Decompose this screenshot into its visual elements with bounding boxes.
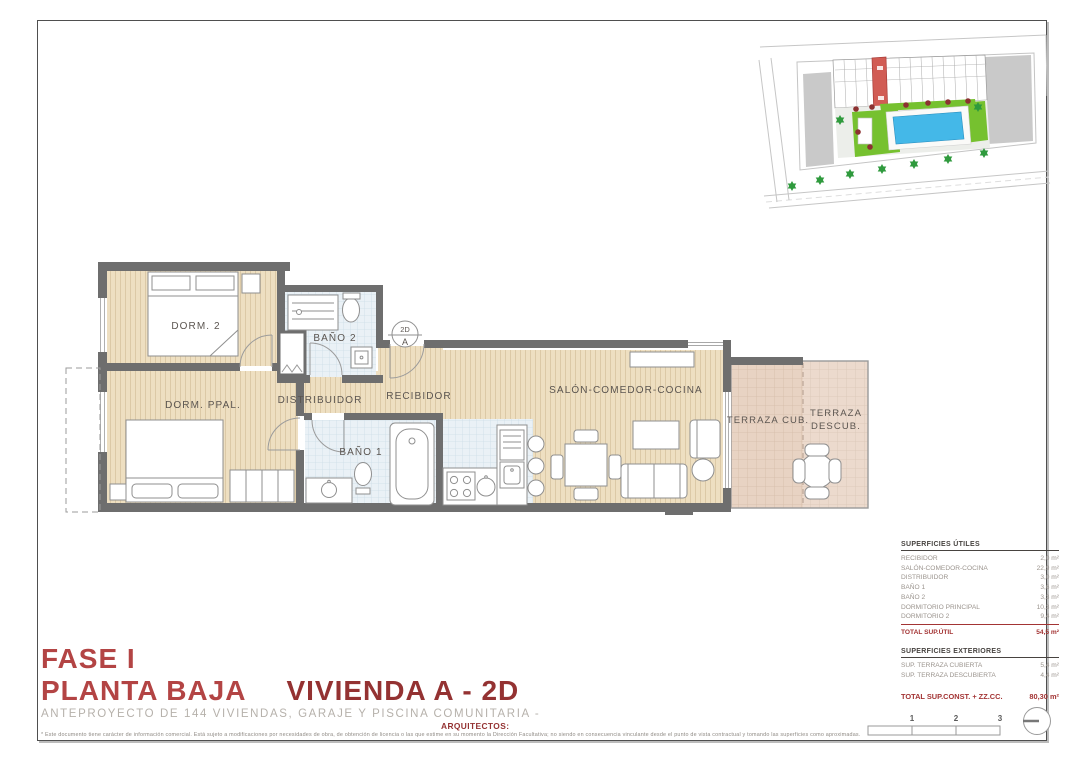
- table-row: SALÓN-COMEDOR-COCINA 22,9 m²: [901, 564, 1059, 574]
- plan-sheet: DORM. 2 BAÑO 2 DORM. PPAL. DISTRIBUIDOR …: [0, 0, 1080, 763]
- room-label-dorm-ppal: DORM. PPAL.: [165, 400, 241, 411]
- legal-disclaimer: * Este documento tiene carácter de infor…: [41, 732, 861, 738]
- table-row: SUP. TERRAZA DESCUBIERTA 4,4 m²: [901, 671, 1059, 681]
- row-label: TOTAL SUP.CONST. + ZZ.CC.: [901, 692, 1003, 701]
- room-label-dorm2: DORM. 2: [171, 321, 220, 332]
- row-label: SALÓN-COMEDOR-COCINA: [901, 564, 988, 574]
- section-marker: 2D A: [388, 321, 422, 347]
- project-subtitle: ANTEPROYECTO DE 144 VIVIENDAS, GARAJE Y …: [41, 708, 540, 720]
- row-value: 3,0 m²: [1040, 573, 1059, 583]
- row-label: DISTRIBUIDOR: [901, 573, 948, 583]
- row-value: 54,5 m²: [1036, 628, 1059, 637]
- table-row: BAÑO 1 3,6 m²: [901, 583, 1059, 593]
- patio-dashed-outline: [66, 368, 100, 512]
- room-label-bano1: BAÑO 1: [339, 445, 382, 458]
- site-garden: [835, 98, 990, 158]
- grand-total-row: TOTAL SUP.CONST. + ZZ.CC. 80,30 m²: [901, 692, 1059, 701]
- table-row: BAÑO 2 3,3 m²: [901, 593, 1059, 603]
- plan-title-line: PLANTA BAJAVIVIENDA A - 2D: [41, 675, 519, 707]
- phase-title: FASE I: [41, 643, 136, 675]
- room-label-distribuidor: DISTRIBUIDOR: [278, 395, 363, 406]
- north-indicator: [1023, 708, 1051, 735]
- row-label: TOTAL SUP.ÚTIL: [901, 628, 953, 637]
- row-value: 4,4 m²: [1040, 671, 1059, 681]
- row-label: SUP. TERRAZA CUBIERTA: [901, 661, 982, 671]
- site-parcel-right: [985, 55, 1033, 144]
- row-value: 3,6 m²: [1040, 583, 1059, 593]
- areas-utiles-title: SUPERFICIES ÚTILES: [901, 541, 1059, 551]
- closet: [279, 332, 305, 375]
- architects-label: ARQUITECTOS:: [441, 721, 509, 731]
- table-row: DISTRIBUIDOR 3,0 m²: [901, 573, 1059, 583]
- site-pool: [893, 112, 964, 144]
- row-label: BAÑO 2: [901, 593, 925, 603]
- areas-table: SUPERFICIES ÚTILES RECIBIDOR 2,0 m² SALÓ…: [901, 541, 1059, 701]
- row-value: 80,30 m²: [1029, 692, 1059, 701]
- total-util-row: TOTAL SUP.ÚTIL 54,5 m²: [901, 624, 1059, 637]
- scale-label-3: 3: [998, 714, 1003, 723]
- room-label-terraza-cub: TERRAZA CUB.: [727, 415, 809, 426]
- unit-title: VIVIENDA A - 2D: [286, 675, 519, 706]
- row-label: DORMITORIO PRINCIPAL: [901, 603, 980, 613]
- row-value: 2,0 m²: [1040, 554, 1059, 564]
- site-parcel-left: [803, 72, 834, 167]
- table-row: RECIBIDOR 2,0 m²: [901, 554, 1059, 564]
- table-row: DORMITORIO 2 9,4 m²: [901, 612, 1059, 622]
- room-label-terraza-descub-1: TERRAZA: [810, 408, 862, 419]
- row-value: 22,9 m²: [1037, 564, 1059, 574]
- areas-exteriores-title: SUPERFICIES EXTERIORES: [901, 648, 1059, 658]
- row-label: DORMITORIO 2: [901, 612, 949, 622]
- row-label: BAÑO 1: [901, 583, 925, 593]
- section-marker-top: 2D: [400, 325, 410, 334]
- scale-label-1: 1: [910, 714, 915, 723]
- row-value: 5,4 m²: [1040, 661, 1059, 671]
- floor-title: PLANTA BAJA: [41, 675, 246, 706]
- room-label-recibidor: RECIBIDOR: [386, 391, 451, 402]
- row-value: 9,4 m²: [1040, 612, 1059, 622]
- scale-bar: 1 2 3: [868, 714, 1003, 735]
- site-plan: [759, 35, 1050, 208]
- room-label-salon: SALÓN-COMEDOR-COCINA: [549, 383, 703, 396]
- table-row: DORMITORIO PRINCIPAL 10,3 m²: [901, 603, 1059, 613]
- row-label: RECIBIDOR: [901, 554, 938, 564]
- row-label: SUP. TERRAZA DESCUBIERTA: [901, 671, 996, 681]
- floor-plan: DORM. 2 BAÑO 2 DORM. PPAL. DISTRIBUIDOR …: [66, 262, 868, 515]
- scale-label-2: 2: [954, 714, 959, 723]
- room-label-bano2: BAÑO 2: [313, 331, 356, 344]
- section-marker-bottom: A: [402, 337, 408, 347]
- table-row: SUP. TERRAZA CUBIERTA 5,4 m²: [901, 661, 1059, 671]
- room-label-terraza-descub-2: DESCUB.: [811, 421, 861, 432]
- row-value: 10,3 m²: [1037, 603, 1059, 613]
- row-value: 3,3 m²: [1040, 593, 1059, 603]
